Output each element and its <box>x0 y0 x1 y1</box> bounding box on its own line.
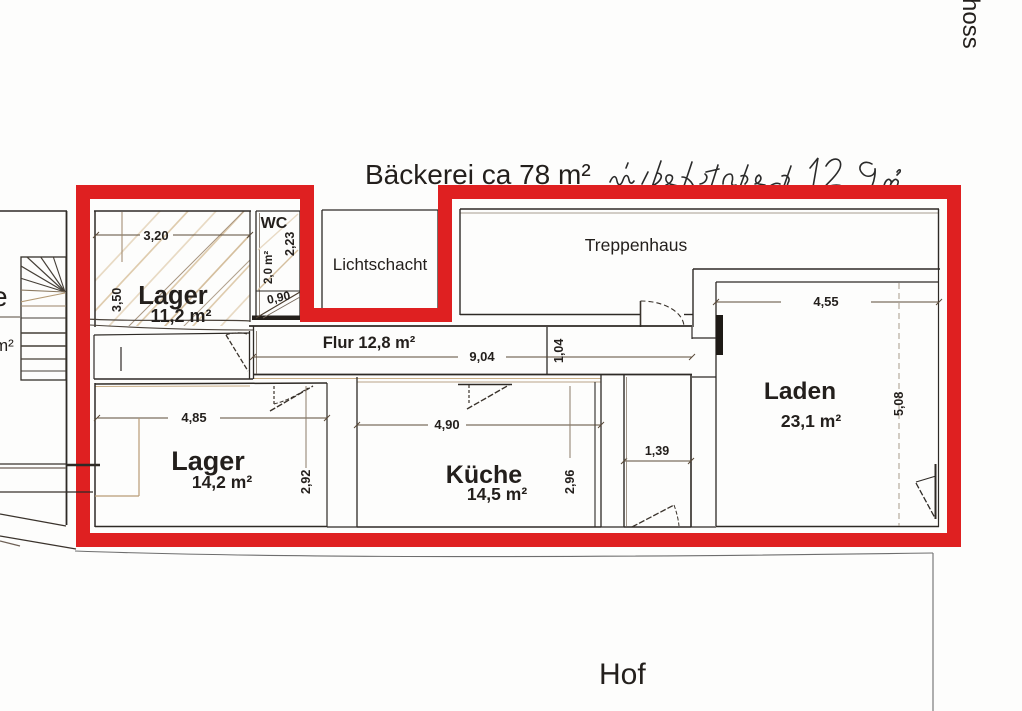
svg-text:Treppenhaus: Treppenhaus <box>585 235 688 255</box>
svg-text:2,23: 2,23 <box>283 232 297 256</box>
svg-text:schoss: schoss <box>957 0 984 49</box>
svg-text:14,5 m²: 14,5 m² <box>467 484 527 504</box>
svg-text:9,04: 9,04 <box>469 349 495 364</box>
svg-text:m²: m² <box>0 336 14 355</box>
svg-text:2,92: 2,92 <box>299 470 313 494</box>
svg-text:3,50: 3,50 <box>110 288 124 312</box>
svg-text:1,39: 1,39 <box>645 444 669 458</box>
svg-text:WC: WC <box>261 215 288 232</box>
svg-text:4,90: 4,90 <box>434 417 459 432</box>
svg-text:3,20: 3,20 <box>143 228 168 243</box>
svg-text:Laden: Laden <box>764 378 836 405</box>
svg-text:5,08: 5,08 <box>892 392 906 416</box>
svg-text:2,96: 2,96 <box>563 470 577 494</box>
svg-text:23,1 m²: 23,1 m² <box>781 411 841 431</box>
svg-text:e: e <box>0 281 8 312</box>
svg-text:2,0 m²: 2,0 m² <box>263 251 275 284</box>
svg-text:1,04: 1,04 <box>552 339 566 363</box>
svg-text:4,85: 4,85 <box>181 410 206 425</box>
svg-text:11,2 m²: 11,2 m² <box>150 306 211 326</box>
svg-text:Hof: Hof <box>599 658 646 691</box>
svg-text:Lichtschacht: Lichtschacht <box>333 255 428 274</box>
svg-text:Flur 12,8 m²: Flur 12,8 m² <box>323 334 416 352</box>
svg-text:14,2 m²: 14,2 m² <box>192 472 252 492</box>
svg-text:4,55: 4,55 <box>813 294 838 309</box>
